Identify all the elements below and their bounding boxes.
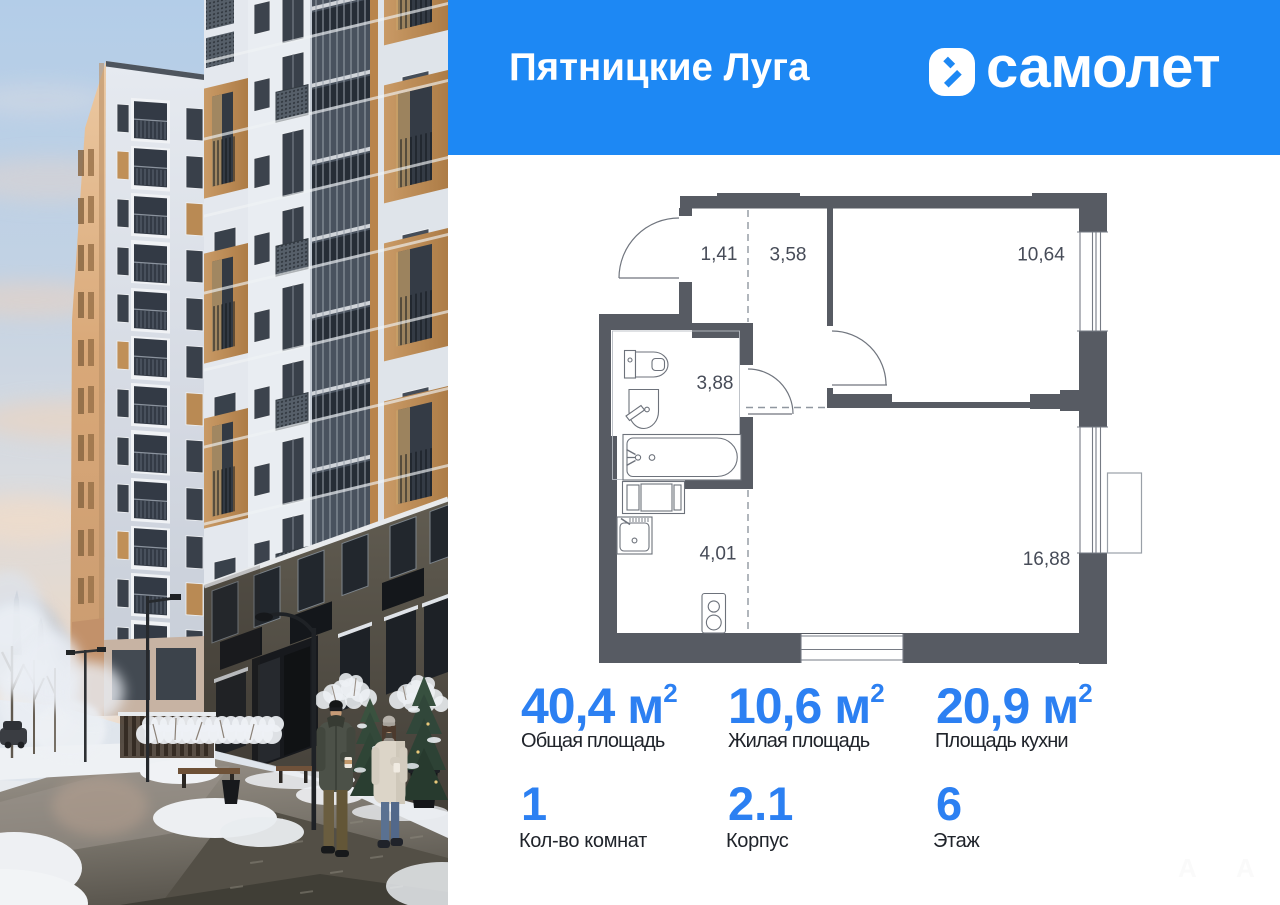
svg-text:1,41: 1,41 bbox=[701, 244, 738, 265]
svg-text:16,88: 16,88 bbox=[1023, 549, 1071, 570]
svg-text:4,01: 4,01 bbox=[700, 544, 737, 565]
svg-text:3,58: 3,58 bbox=[770, 245, 807, 266]
svg-text:3,88: 3,88 bbox=[697, 373, 734, 394]
svg-text:10,64: 10,64 bbox=[1017, 245, 1065, 266]
